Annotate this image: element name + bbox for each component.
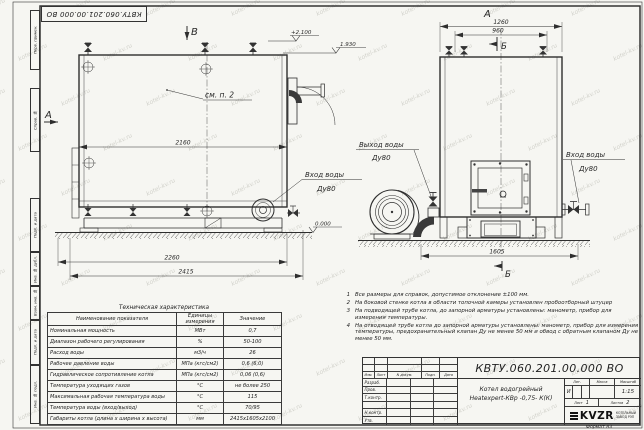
- note-number: 1: [344, 292, 350, 299]
- list-item: 4На отводящей трубе котла до запорной ар…: [344, 323, 642, 343]
- table-row: Температура воды (вход/выход)°С70/95: [48, 403, 282, 414]
- row-label-razrab: Разраб.: [363, 379, 387, 387]
- section-b-top-label: Б: [501, 42, 507, 52]
- stamp-vzam-inv: Взам. инв. №: [30, 286, 40, 320]
- tech-cell: °С: [177, 381, 224, 392]
- row-label-prov: Пров.: [363, 387, 387, 395]
- rotated-doc-number: КВТУ.060.201.00.000 ВО: [46, 10, 141, 18]
- table-row: Номинальная мощностьМВт0,7: [48, 326, 282, 337]
- table-row: Расход водым3/ч26: [48, 348, 282, 359]
- title-block-doc-number: КВТУ.060.201.00.000 ВО: [457, 358, 641, 379]
- tech-cell: 50-100: [224, 337, 282, 348]
- row-label-nkontr: Н.контр.: [363, 409, 387, 417]
- tech-cell: 115: [224, 392, 282, 403]
- inlet-right-label: Вход воды: [566, 151, 606, 159]
- stamp-podp-data-1: Подп. и дата: [30, 198, 40, 252]
- company-cell: KVZR КОТЕЛЬНЫЙ ЗАВОД РЭП: [565, 407, 641, 424]
- sheets-value: 2: [626, 400, 629, 406]
- stamp-sprav-no: Справ. №: [30, 88, 40, 152]
- elevation-chimney-label: 1.930: [340, 42, 356, 48]
- scale-header: Масштаб: [615, 379, 641, 386]
- stamp-perv-primen: Перв. примен.: [30, 10, 40, 70]
- title-block-stats: Лит. Масса Масштаб И 1:15 Лист 1 Листов …: [565, 379, 641, 425]
- dim-2160-label: 2160: [175, 140, 190, 147]
- outlet-label: Выход воды: [359, 141, 404, 149]
- note-text: На боковой стенке котла в области топочн…: [355, 300, 612, 307]
- tech-cell: Рабочее давление воды: [48, 359, 177, 370]
- elevation-ground-label: 0.000: [315, 222, 331, 228]
- table-row: Температура уходящих газов°Сне более 250: [48, 381, 282, 392]
- tech-cell: 0,6 (6,0): [224, 359, 282, 370]
- row-label-utv: Утв.: [363, 417, 387, 425]
- company-name: КОТЕЛЬНЫЙ ЗАВОД РЭП: [616, 412, 636, 419]
- sheets-label: Листов: [611, 401, 624, 405]
- table-row: Диапазон рабочего регулирования%50-100: [48, 337, 282, 348]
- dim-960-label: 960: [492, 28, 504, 35]
- tech-cell: МПа (кгс/см2): [177, 370, 224, 381]
- tap-marks: [81, 60, 214, 218]
- tech-characteristics: Техническая характеристика Наименование …: [47, 305, 281, 425]
- list-item: 3На подводящей трубе котла, до запорной …: [344, 308, 642, 321]
- product-name-line1: Котел водогрейный: [480, 386, 543, 395]
- boiler-side-view: [44, 26, 366, 280]
- rotated-doc-number-box: КВТУ.060.201.00.000 ВО: [41, 6, 147, 22]
- blower-fan: [370, 190, 439, 239]
- tech-cell: 0,06 (0,6): [224, 370, 282, 381]
- inlet-side-label: Вход воды: [305, 171, 345, 179]
- sheet-label: Лист: [574, 401, 583, 405]
- tech-cell: Гидравлическое сопротивление котла: [48, 370, 177, 381]
- tech-cell: МВт: [177, 326, 224, 337]
- note-text: На подводящей трубе котла, до запорной а…: [355, 308, 642, 321]
- list-item: 1Все размеры для справок, допустимое отк…: [344, 292, 642, 299]
- col-header-podp: Подп.: [422, 372, 440, 379]
- dim-2415-label: 2415: [178, 269, 193, 276]
- tech-cell: Температура уходящих газов: [48, 381, 177, 392]
- tech-header-value: Значение: [224, 313, 282, 326]
- table-row: Максимальная рабочая температура воды°С1…: [48, 392, 282, 403]
- view-a-label: А: [483, 9, 491, 20]
- tech-cell: 0,7: [224, 326, 282, 337]
- elevation-marks: [268, 36, 366, 233]
- inlet-right-dn-label: Ду80: [578, 165, 598, 173]
- table-row: Габариты котла (длина х ширина х высота)…: [48, 414, 282, 425]
- lit-value: И: [565, 386, 573, 399]
- tech-cell: Температура воды (вход/выход): [48, 403, 177, 414]
- drawing-texts: 2160 2260 2415 1260 960 1605 +2.100 1.93…: [44, 9, 606, 280]
- sheet-value: 1: [586, 400, 589, 406]
- stamp-inv-podl: Инв. № подл.: [30, 365, 40, 424]
- boiler-front-view: [273, 22, 625, 271]
- scale-value: 1:15: [615, 386, 641, 399]
- stamp-inv-dubl: Инв. № дубл.: [30, 252, 40, 286]
- roof-valve-icons: [84, 43, 257, 52]
- table-row: Гидравлическое сопротивление котлаМПа (к…: [48, 370, 282, 381]
- see-note-label: см. п. 2: [205, 91, 234, 100]
- kvzr-logo-icon: [570, 412, 578, 420]
- side-view-dimensions: [58, 147, 303, 280]
- elevation-top-label: +2.100: [291, 30, 312, 36]
- format-label: Формат А3: [586, 425, 612, 430]
- tech-cell: Диапазон рабочего регулирования: [48, 337, 177, 348]
- product-name-cell: Котел водогрейный Heatexpert-КВр -0,75- …: [457, 379, 565, 425]
- tech-cell: Номинальная мощность: [48, 326, 177, 337]
- tech-cell: 70/95: [224, 403, 282, 414]
- col-header-izm: Изм.: [363, 372, 375, 379]
- tech-cell: не более 250: [224, 381, 282, 392]
- dim-1605-label: 1605: [489, 249, 504, 256]
- drawing-sheet: kotel-kv.rukotel-kv.rukotel-kv.rukotel-k…: [0, 0, 644, 430]
- mass-header: Масса: [590, 379, 615, 386]
- tech-cell: °С: [177, 403, 224, 414]
- tech-table-title: Техническая характеристика: [47, 305, 281, 311]
- dim-2260-label: 2260: [164, 255, 179, 262]
- section-v-label: В: [191, 27, 198, 38]
- mass-value: [590, 386, 615, 399]
- tech-cell: 2415х1605х2100: [224, 414, 282, 425]
- dim-1260-label: 1260: [493, 19, 508, 26]
- row-label-tkontr: Т.контр.: [363, 394, 387, 402]
- title-block: КВТУ.060.201.00.000 ВО Изм. Лист N докум…: [362, 357, 640, 424]
- section-a-left-label: А: [44, 110, 52, 121]
- table-row: Рабочее давление водыМПа (кгс/см2)0,6 (6…: [48, 359, 282, 370]
- tech-table: Наименование показателя Единицы измерени…: [47, 312, 282, 425]
- outlet-dn-label: Ду80: [371, 154, 391, 162]
- tech-cell: м3/ч: [177, 348, 224, 359]
- list-item: 2На боковой стенке котла в области топоч…: [344, 300, 642, 307]
- col-header-data: Дата: [440, 372, 457, 379]
- note-number: 3: [344, 308, 350, 321]
- tech-cell: Максимальная рабочая температура воды: [48, 392, 177, 403]
- tech-cell: мм: [177, 414, 224, 425]
- product-name-line2: Heatexpert-КВр -0,75- К(К): [470, 395, 553, 404]
- tech-cell: °С: [177, 392, 224, 403]
- signature-rows: Разраб. Пров. Т.контр. Н.контр. Утв.: [363, 379, 457, 425]
- section-b-bottom-label: Б: [505, 270, 511, 280]
- tech-cell: Габариты котла (длина х ширина х высота): [48, 414, 177, 425]
- tech-cell: %: [177, 337, 224, 348]
- note-text: Все размеры для справок, допустимое откл…: [355, 292, 529, 299]
- note-text: На отводящей трубе котла до запорной арм…: [355, 323, 642, 343]
- kvzr-logo-text: KVZR: [580, 410, 614, 422]
- tech-header-name: Наименование показателя: [48, 313, 177, 326]
- tech-cell: 26: [224, 348, 282, 359]
- tech-header-units: Единицы измерения: [177, 313, 224, 326]
- note-number: 4: [344, 323, 350, 343]
- note-number: 2: [344, 300, 350, 307]
- notes-list: 1Все размеры для справок, допустимое отк…: [344, 292, 642, 344]
- tech-header-row: Наименование показателя Единицы измерени…: [48, 313, 282, 326]
- inlet-side-dn-label: Ду80: [316, 185, 336, 193]
- lit-header: Лит.: [565, 379, 590, 386]
- company-name-line2: ЗАВОД РЭП: [616, 416, 636, 420]
- col-header-docnum: N докум.: [388, 372, 422, 379]
- col-header-list: Лист: [375, 372, 388, 379]
- tech-cell: Расход воды: [48, 348, 177, 359]
- tech-cell: МПа (кгс/см2): [177, 359, 224, 370]
- revision-grid: Изм. Лист N докум. Подп. Дата: [363, 358, 457, 379]
- stamp-podp-data-2: Подп. и дата: [30, 320, 40, 365]
